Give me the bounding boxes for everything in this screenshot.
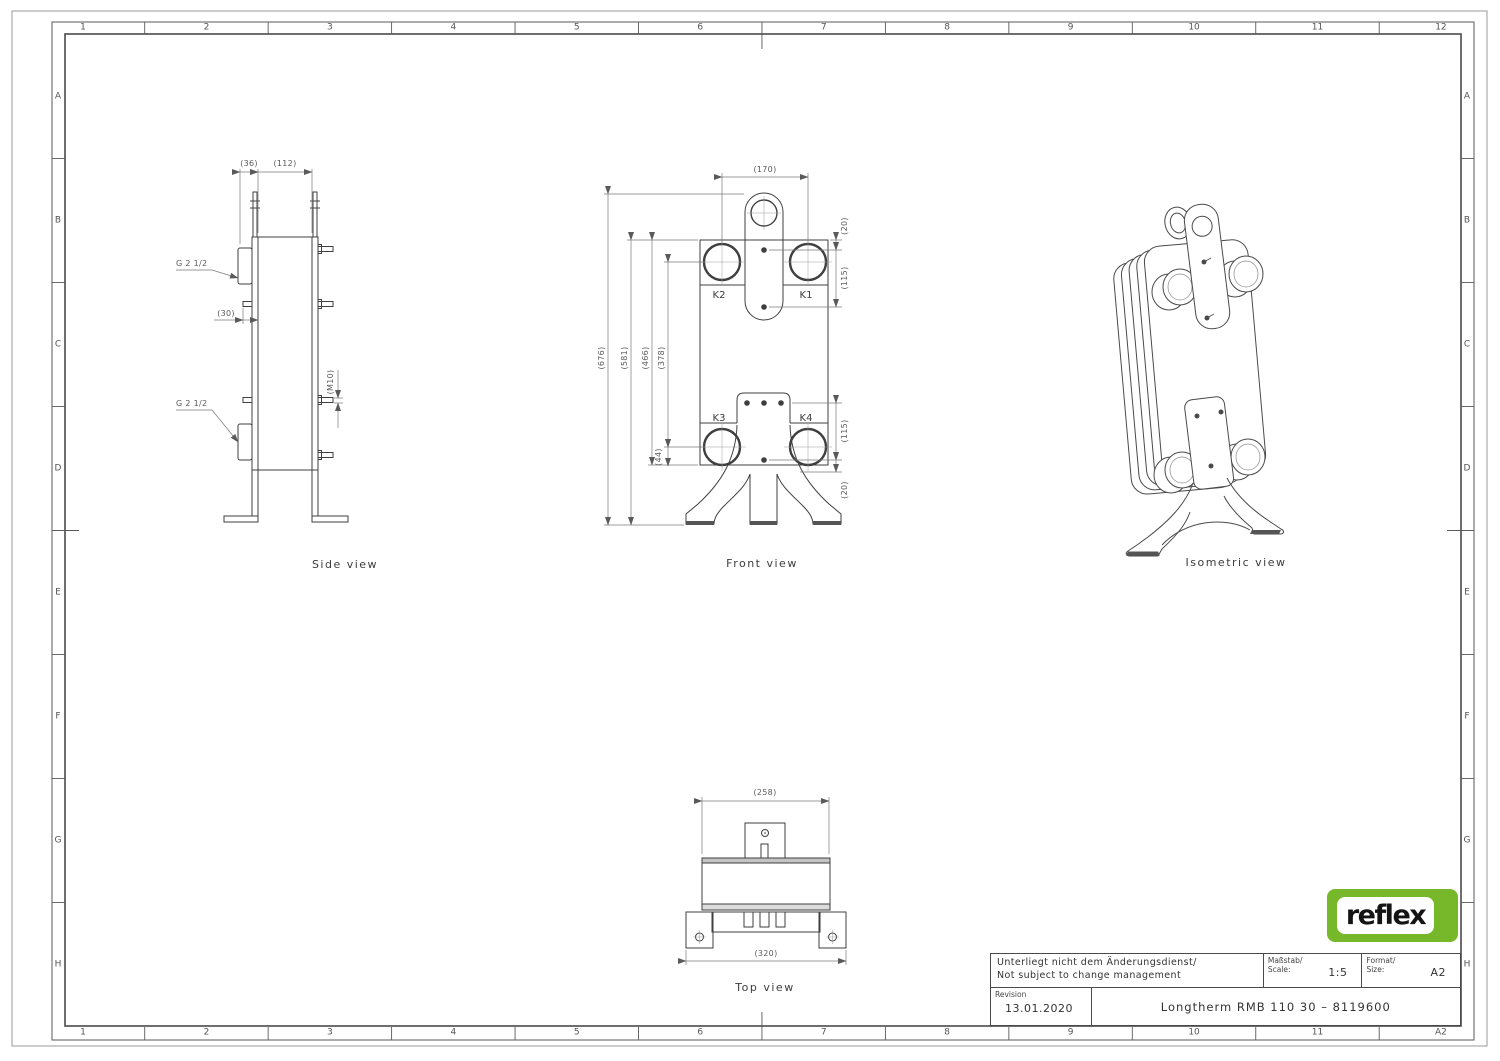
grid-label: 2 xyxy=(204,24,210,33)
grid-label: 10 xyxy=(1188,24,1199,33)
front-view-geometry xyxy=(686,193,841,525)
front-view-dimensions xyxy=(604,173,842,525)
grid-label: 1 xyxy=(80,24,86,33)
reflex-logo-plate: reflex xyxy=(1337,897,1434,934)
port-label-k1: K1 xyxy=(800,290,813,301)
grid-label: F xyxy=(55,712,60,721)
grid-label: 11 xyxy=(1312,1029,1323,1038)
grid-label: E xyxy=(1464,588,1470,597)
dim-170: (170) xyxy=(753,165,776,174)
grid-label: 8 xyxy=(944,1029,950,1038)
isometric-view-label: Isometric view xyxy=(1186,556,1287,569)
change-note-en: Not subject to change management xyxy=(997,970,1257,983)
port-label-k4: K4 xyxy=(800,413,813,424)
top-view-geometry xyxy=(686,823,846,948)
title-block: Unterliegt nicht dem Änderungsdienst/ No… xyxy=(990,953,1461,1026)
dim-44: (44) xyxy=(654,448,663,466)
side-view-geometry xyxy=(224,192,348,522)
dim-258: (258) xyxy=(753,788,776,797)
reflex-logo-text: reflex xyxy=(1346,900,1425,931)
isometric-view: Isometric view xyxy=(1100,185,1360,580)
port-label-k2: K2 xyxy=(713,290,726,301)
grid-label: 2 xyxy=(204,1029,210,1038)
grid-label: G xyxy=(1464,836,1471,845)
revision-cell: Revision 13.01.2020 xyxy=(991,988,1091,1025)
title-block-row-2: Revision 13.01.2020 Longtherm RMB 110 30… xyxy=(991,988,1460,1025)
port-label-k3: K3 xyxy=(713,413,726,424)
grid-label: 7 xyxy=(821,24,827,33)
drawing-sheet: 1234567891011121234567891011A2ABCDEFGHAB… xyxy=(0,0,1500,1061)
front-view-label: Front view xyxy=(726,557,798,570)
dim-378: (378) xyxy=(657,346,666,369)
dim-115-bottom: (115) xyxy=(840,419,849,442)
grid-label: F xyxy=(1464,712,1469,721)
grid-label: 10 xyxy=(1188,1029,1199,1038)
top-view: (258) (320) Top view xyxy=(660,782,880,1004)
dim-20-bottom: (20) xyxy=(840,481,849,499)
format-cell: Format/ Size: A2 xyxy=(1361,954,1460,987)
grid-label: 9 xyxy=(1068,1029,1074,1038)
side-view-label: Side view xyxy=(312,558,378,571)
grid-label: 9 xyxy=(1068,24,1074,33)
scale-cell: Maßstab/ Scale: 1:5 xyxy=(1263,954,1362,987)
grid-label: B xyxy=(55,216,61,225)
iso-geometry xyxy=(1111,202,1283,556)
dim-320: (320) xyxy=(754,949,777,958)
side-view: (36) (112) (30) (M10) G 2 1/2 G 2 1/2 Si… xyxy=(150,140,410,580)
title-block-row-1: Unterliegt nicht dem Änderungsdienst/ No… xyxy=(991,954,1460,988)
scale-label-de: Maßstab/ xyxy=(1268,956,1303,965)
grid-label: 8 xyxy=(944,24,950,33)
grid-label: E xyxy=(55,588,61,597)
grid-label: C xyxy=(1464,340,1470,349)
revision-value: 13.01.2020 xyxy=(1005,1002,1073,1015)
grid-label: 6 xyxy=(697,1029,703,1038)
change-note-cell: Unterliegt nicht dem Änderungsdienst/ No… xyxy=(991,954,1263,987)
top-view-label: Top view xyxy=(734,981,794,994)
grid-label: C xyxy=(55,340,61,349)
grid-label: 11 xyxy=(1312,24,1323,33)
grid-label: 4 xyxy=(450,1029,456,1038)
grid-label: 5 xyxy=(574,24,580,33)
format-label-en: Size: xyxy=(1366,965,1395,974)
dim-30: (30) xyxy=(217,309,235,318)
grid-label: A2 xyxy=(1435,1029,1447,1038)
grid-label: 4 xyxy=(450,24,456,33)
dim-20-top: (20) xyxy=(840,217,849,235)
connection-label-top: G 2 1/2 xyxy=(176,259,207,268)
grid-label: 7 xyxy=(821,1029,827,1038)
dim-581: (581) xyxy=(620,346,629,369)
grid-label: 6 xyxy=(697,24,703,33)
dim-36: (36) xyxy=(240,159,258,168)
grid-label: 3 xyxy=(327,1029,333,1038)
scale-label-en: Scale: xyxy=(1268,965,1303,974)
dim-466: (466) xyxy=(641,346,650,369)
grid-label: 1 xyxy=(80,1029,86,1038)
grid-label: D xyxy=(1464,464,1471,473)
side-connection-top xyxy=(238,248,252,284)
grid-label: H xyxy=(1464,960,1471,969)
grid-label: 3 xyxy=(327,24,333,33)
format-label-de: Format/ xyxy=(1366,956,1395,965)
grid-label: B xyxy=(1464,216,1470,225)
reflex-logo: reflex xyxy=(1327,889,1458,942)
top-view-dimensions xyxy=(686,797,846,965)
format-value: A2 xyxy=(1430,966,1446,979)
drawing-title: Longtherm RMB 110 30 – 8119600 xyxy=(1091,988,1460,1025)
grid-label: H xyxy=(55,960,62,969)
foot-bracket xyxy=(737,393,790,423)
front-view: (170) (676) (581) (466) (378) (44) (20) … xyxy=(580,160,900,580)
dim-115-top: (115) xyxy=(840,266,849,289)
revision-label: Revision xyxy=(995,990,1026,999)
grid-label: A xyxy=(1464,92,1470,101)
dim-112: (112) xyxy=(273,159,296,168)
dim-676: (676) xyxy=(597,346,606,369)
dim-m10: (M10) xyxy=(326,370,335,395)
grid-label: 12 xyxy=(1435,24,1446,33)
change-note-de: Unterliegt nicht dem Änderungsdienst/ xyxy=(997,957,1257,970)
scale-value: 1:5 xyxy=(1328,966,1347,979)
connection-label-bottom: G 2 1/2 xyxy=(176,399,207,408)
grid-label: G xyxy=(55,836,62,845)
side-connection-bottom xyxy=(238,424,252,460)
grid-label: A xyxy=(55,92,61,101)
grid-label: D xyxy=(55,464,62,473)
grid-label: 5 xyxy=(574,1029,580,1038)
